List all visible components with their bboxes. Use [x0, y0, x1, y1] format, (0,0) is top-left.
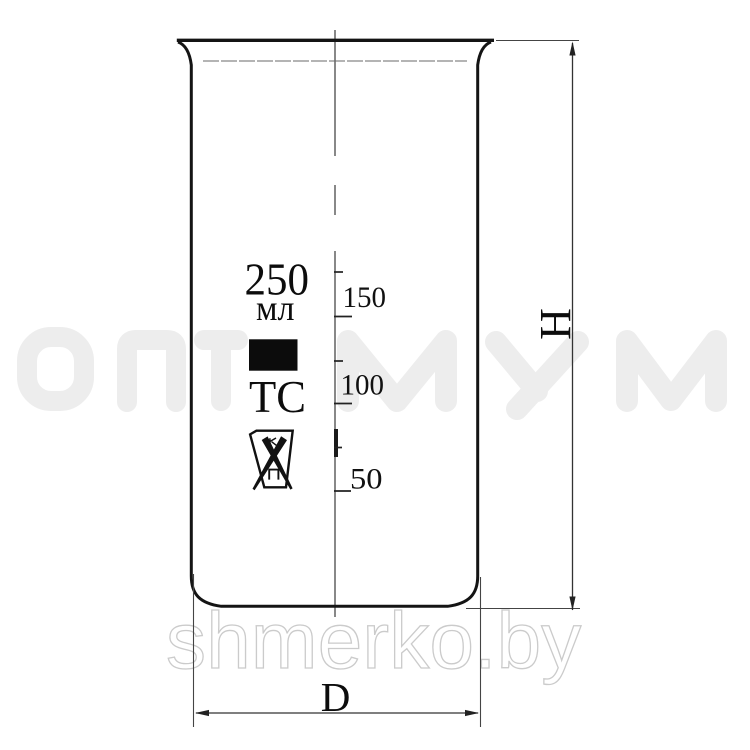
svg-text:100: 100 [341, 369, 385, 402]
svg-text:мл: мл [256, 288, 295, 328]
svg-text:H: H [531, 308, 580, 340]
svg-text:150: 150 [343, 281, 387, 314]
svg-text:shmerko.by: shmerko.by [166, 596, 581, 685]
svg-text:50: 50 [350, 462, 383, 495]
svg-text:D: D [321, 674, 351, 720]
svg-text:ТС: ТС [249, 372, 306, 422]
